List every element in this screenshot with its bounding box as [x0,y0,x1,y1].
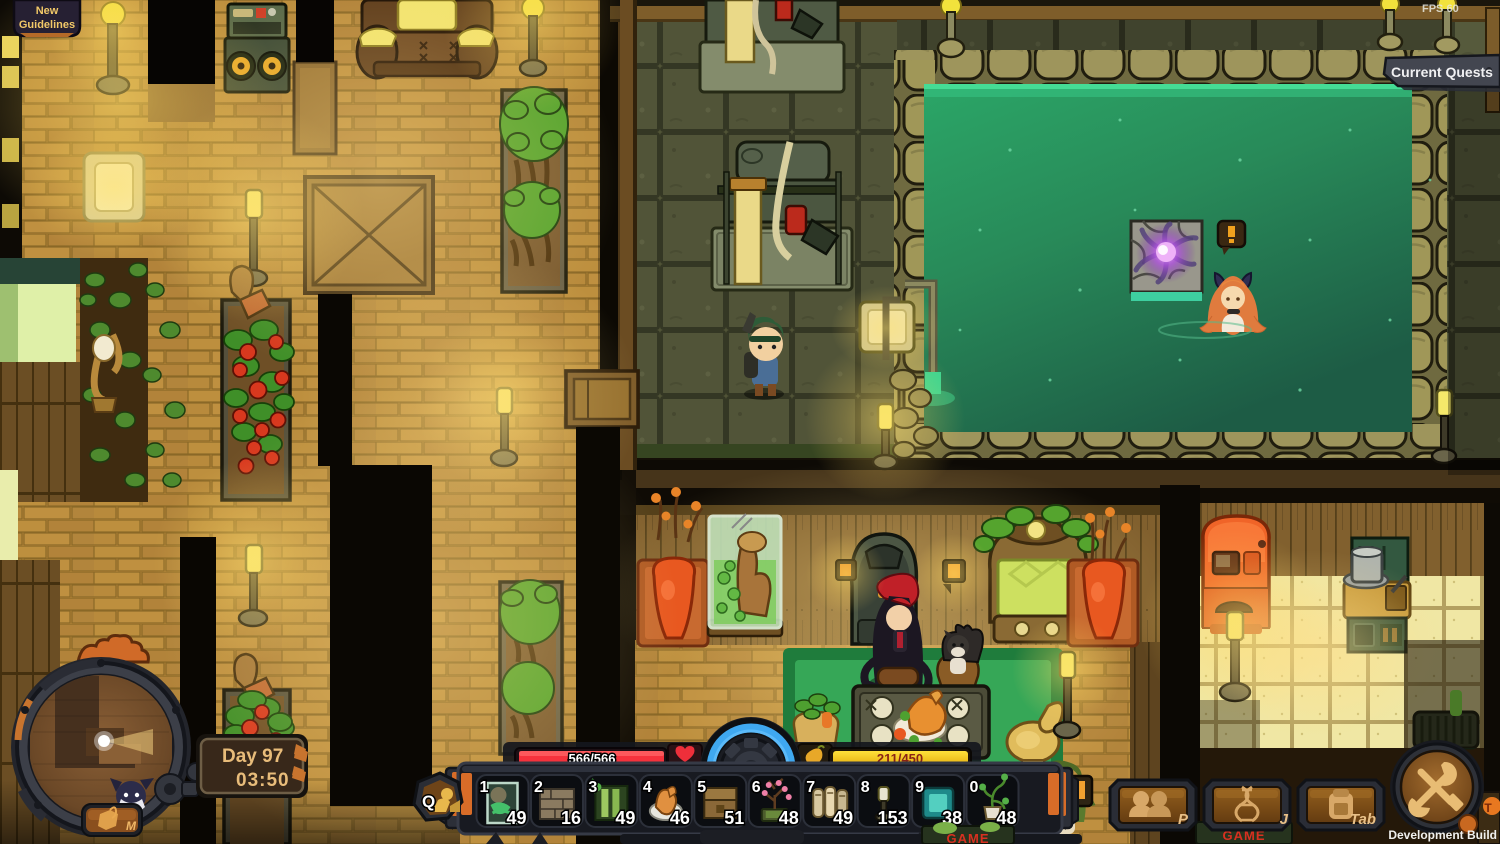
svg-text:T: T [1484,801,1492,815]
svg-text:J: J [1280,811,1289,828]
svg-text:Development Build: Development Build [1388,828,1497,842]
svg-text:Tab: Tab [1350,811,1376,828]
svg-text:P: P [1178,811,1189,828]
svg-text:GAME: GAME [947,831,990,844]
